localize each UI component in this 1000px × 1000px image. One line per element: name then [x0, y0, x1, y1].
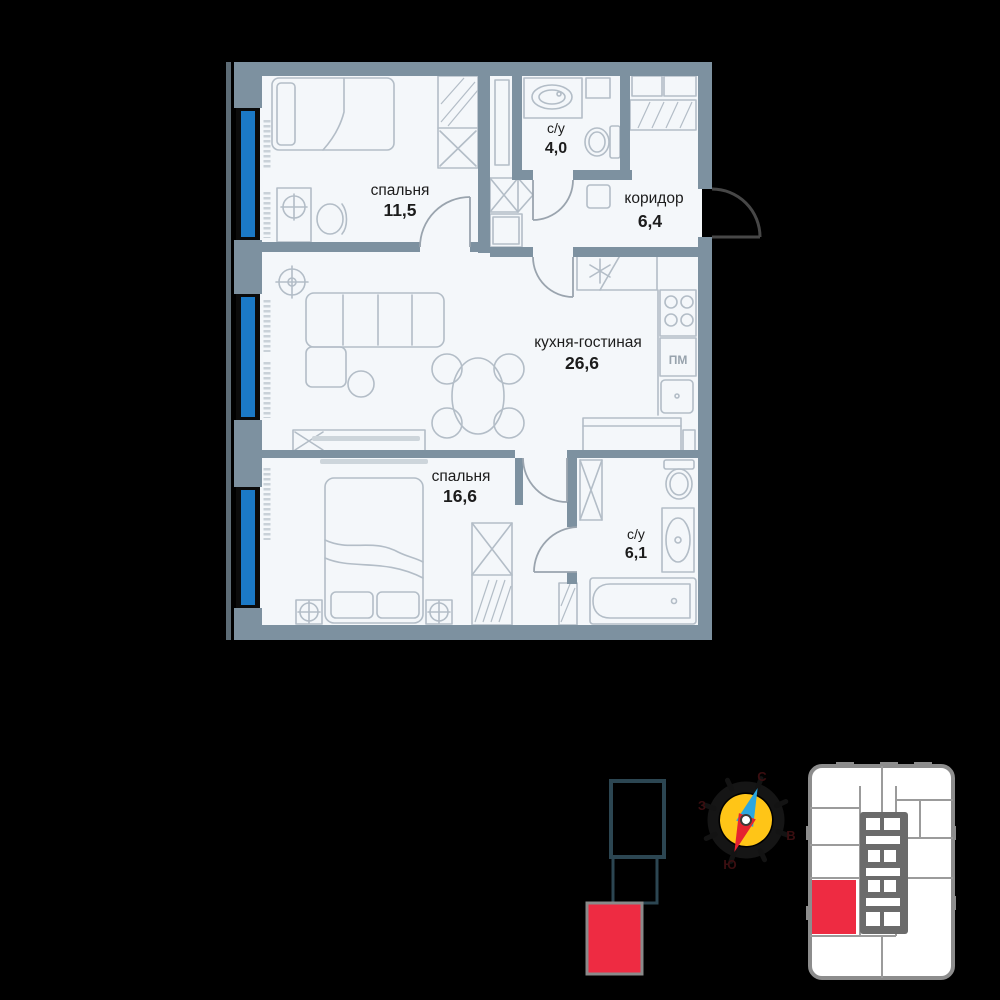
room-area-bedroom2: 16,6 — [443, 486, 477, 506]
facade-windows — [226, 62, 260, 640]
compass-west: З — [698, 798, 706, 813]
section-indicator — [587, 781, 664, 974]
pier-4 — [234, 608, 262, 640]
room-name-bedroom2: спальня — [432, 468, 491, 485]
room-name-corridor: коридор — [624, 190, 683, 207]
wall-corridor-kitchen — [573, 247, 698, 257]
wall-bath1-right — [620, 76, 630, 180]
room-area-kitchen-living: 26,6 — [565, 353, 599, 373]
wall-bottom — [234, 625, 712, 640]
facade-line — [226, 62, 231, 640]
floor-plan: спальня 11,5 с/у 4,0 коридор 6,4 кухня-г… — [226, 62, 760, 640]
pier-1 — [234, 62, 262, 108]
wall-bath1-left — [512, 76, 522, 170]
wall-right-upper — [698, 62, 712, 189]
wall-right-lower — [698, 237, 712, 640]
room-area-bathroom2: 6,1 — [625, 545, 647, 562]
compass-rose — [690, 764, 803, 877]
room-name-kitchen-living: кухня-гостиная — [534, 334, 642, 351]
compass-east: В — [786, 828, 795, 843]
room-area-corridor: 6,4 — [638, 211, 663, 231]
room-area-bedroom1: 11,5 — [383, 200, 416, 220]
wall-central — [478, 76, 490, 253]
building-key-plan — [806, 762, 956, 980]
tv-icon — [320, 459, 428, 464]
dishwasher-label: ПМ — [669, 353, 688, 367]
room-area-bathroom1: 4,0 — [545, 140, 567, 157]
entry-door — [712, 189, 760, 237]
section-box-middle — [613, 857, 657, 903]
window-bedroom1 — [236, 108, 260, 240]
compass-north: С — [757, 769, 767, 784]
section-box-active — [587, 903, 642, 974]
building-core — [860, 812, 908, 934]
room-name-bathroom1: с/у — [547, 120, 565, 136]
compass-icon: С В Ю З — [690, 764, 803, 877]
pier-3 — [234, 420, 262, 487]
pier-2 — [234, 240, 262, 294]
floor-plan-page: спальня 11,5 с/у 4,0 коридор 6,4 кухня-г… — [0, 0, 1000, 1000]
window-bedroom2 — [236, 487, 260, 608]
section-box-top — [611, 781, 664, 857]
window-living — [236, 294, 260, 420]
plan-canvas: спальня 11,5 с/у 4,0 коридор 6,4 кухня-г… — [0, 0, 1000, 1000]
wall-top — [262, 62, 698, 76]
highlighted-unit — [812, 880, 856, 934]
wall-bedroom1-bottom — [262, 242, 420, 252]
room-name-bedroom1: спальня — [371, 182, 430, 199]
compass-south: Ю — [723, 857, 736, 872]
wall-bath2-left — [567, 458, 577, 527]
room-name-bathroom2: с/у — [627, 526, 645, 542]
wall-bath2-top — [567, 450, 698, 458]
wall-bedroom2-top — [262, 450, 515, 458]
